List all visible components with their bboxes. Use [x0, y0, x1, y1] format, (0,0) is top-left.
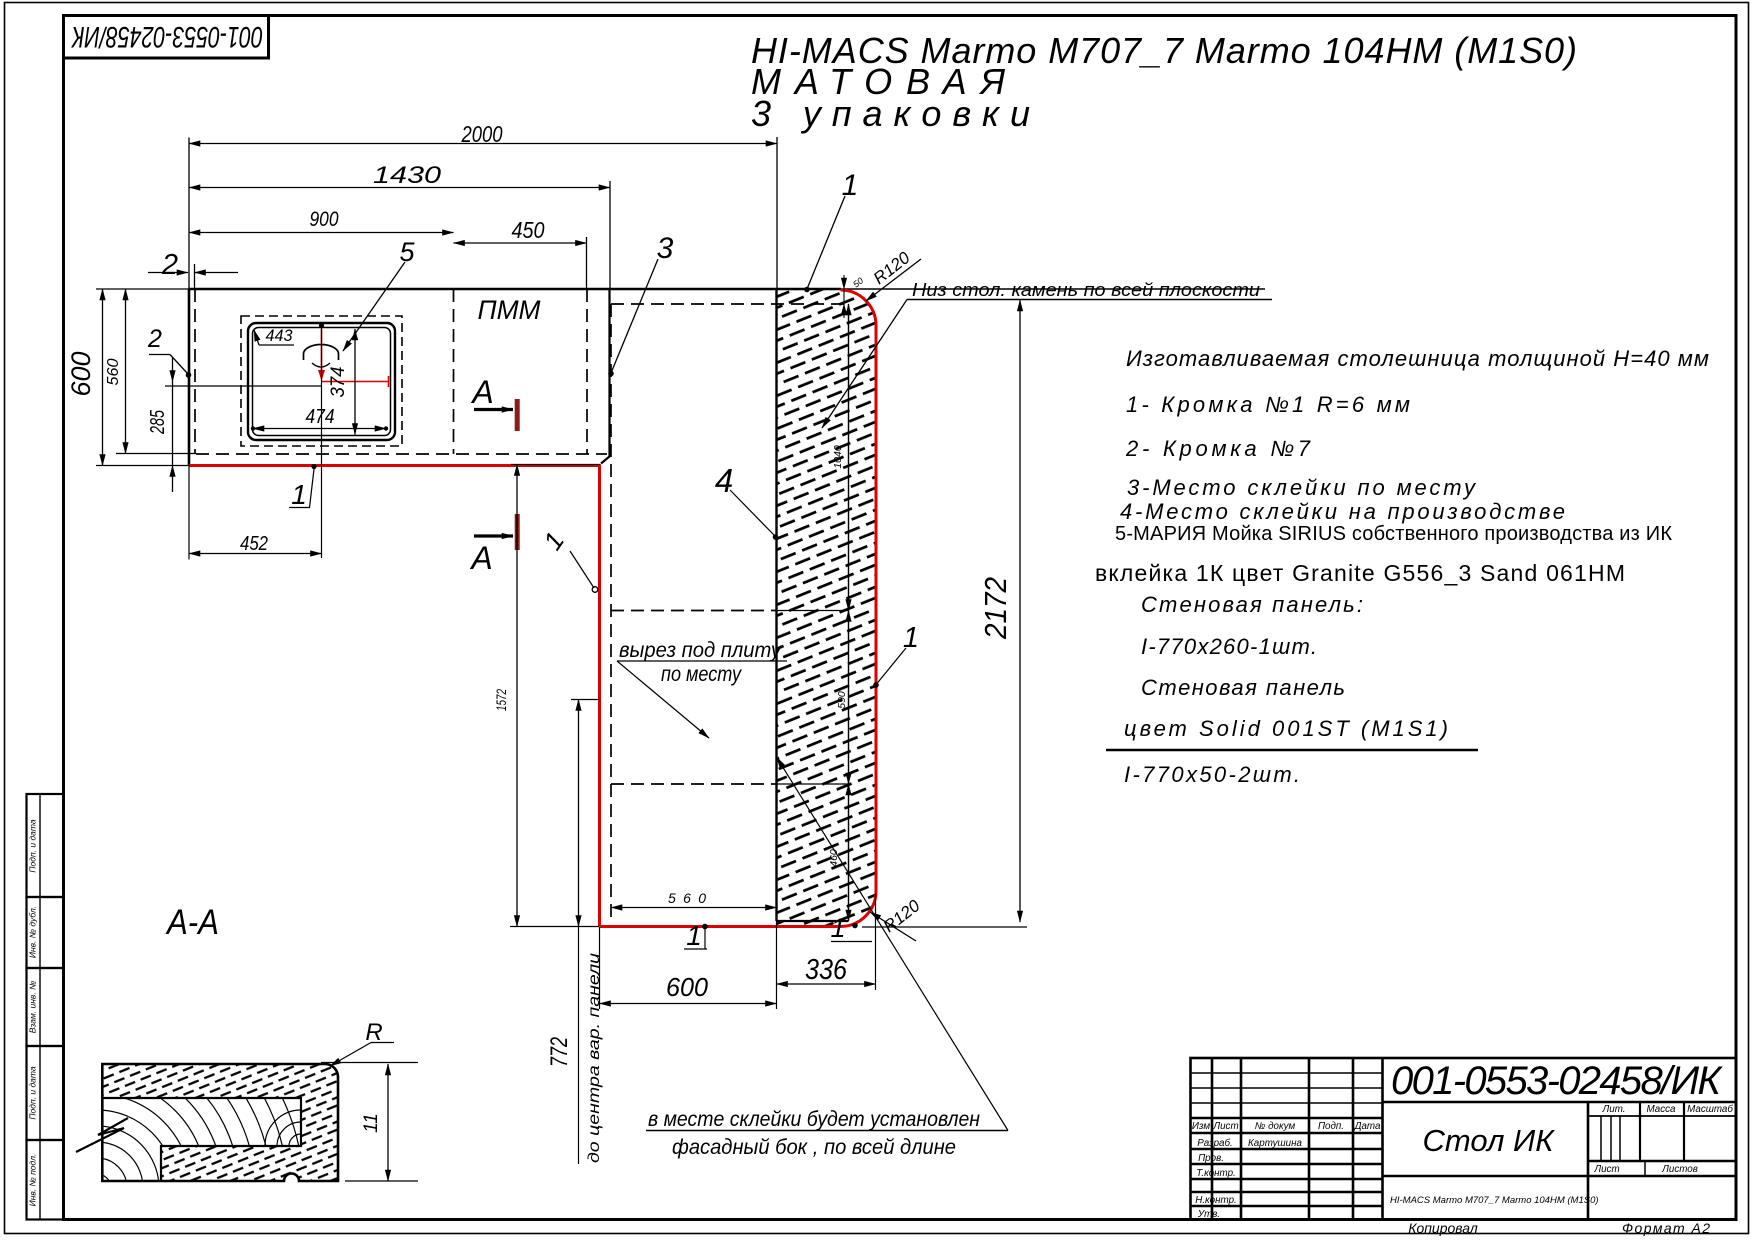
svg-text:Картушина: Картушина — [1248, 1138, 1302, 1149]
svg-text:2000: 2000 — [461, 121, 503, 147]
svg-text:5: 5 — [399, 237, 415, 267]
svg-text:Подп. и дата: Подп. и дата — [28, 1066, 38, 1119]
svg-text:Изм: Изм — [1192, 1121, 1210, 1132]
svg-text:Т.контр.: Т.контр. — [1196, 1168, 1236, 1179]
svg-text:11: 11 — [361, 1113, 382, 1133]
svg-text:3-Место склейки по месту: 3-Место склейки по месту — [1127, 475, 1477, 500]
svg-text:А: А — [470, 374, 493, 410]
svg-text:вклейка 1К цвет Granite G556_3: вклейка 1К цвет Granite G556_3 Sand 061H… — [1095, 560, 1625, 586]
svg-text:Стеновая панель:: Стеновая панель: — [1141, 592, 1363, 617]
svg-text:Формат А2: Формат А2 — [1622, 1220, 1710, 1236]
svg-text:Масса: Масса — [1647, 1104, 1677, 1115]
svg-text:5-МАРИЯ Мойка SIRIUS собственн: 5-МАРИЯ Мойка SIRIUS собственного произв… — [1115, 523, 1672, 545]
svg-text:по месту: по месту — [661, 663, 742, 686]
svg-text:1- Кромка №1 R=6 мм: 1- Кромка №1 R=6 мм — [1126, 392, 1410, 417]
svg-text:Масштаб: Масштаб — [1687, 1104, 1733, 1115]
svg-text:2: 2 — [147, 325, 162, 353]
svg-text:3: 3 — [657, 232, 674, 265]
svg-text:А: А — [469, 540, 492, 576]
svg-text:1: 1 — [291, 479, 307, 510]
svg-text:590: 590 — [836, 691, 848, 709]
svg-text:Подп. и дата: Подп. и дата — [28, 819, 38, 872]
svg-text:600: 600 — [66, 352, 96, 397]
svg-text:вырез под плиту: вырез под плиту — [619, 639, 782, 662]
svg-text:900: 900 — [310, 208, 339, 231]
svg-text:1040: 1040 — [832, 445, 844, 469]
svg-text:772: 772 — [546, 1037, 573, 1067]
svg-text:Стол ИК: Стол ИК — [1423, 1123, 1556, 1158]
svg-text:Копировал: Копировал — [1408, 1220, 1478, 1236]
svg-text:1: 1 — [686, 920, 702, 951]
svg-text:1572: 1572 — [493, 689, 509, 711]
svg-text:I-770x260-1шт.: I-770x260-1шт. — [1141, 634, 1317, 659]
svg-text:2- Кромка №7: 2- Кромка №7 — [1125, 436, 1311, 461]
svg-text:374: 374 — [328, 367, 349, 398]
svg-text:Лист: Лист — [1212, 1121, 1238, 1132]
svg-text:до центра вар. панели: до центра вар. панели — [586, 953, 603, 1163]
svg-text:2: 2 — [161, 249, 178, 281]
svg-text:452: 452 — [240, 533, 268, 555]
svg-text:Разраб.: Разраб. — [1197, 1138, 1232, 1149]
svg-text:001-0553-02458/ИК: 001-0553-02458/ИК — [70, 20, 263, 53]
svg-text:560: 560 — [105, 358, 122, 385]
svg-text:336: 336 — [805, 954, 848, 986]
svg-text:ПММ: ПММ — [478, 295, 541, 325]
svg-text:Дата: Дата — [1354, 1121, 1381, 1132]
svg-text:Взам. инв. №: Взам. инв. № — [28, 981, 38, 1034]
svg-text:Изготавливаемая столешница т: Изготавливаемая столешница толщиной Н=40… — [1126, 346, 1709, 371]
svg-text:Листов: Листов — [1661, 1164, 1698, 1175]
svg-text:А-А: А-А — [165, 903, 219, 942]
svg-text:450: 450 — [512, 217, 545, 243]
svg-text:Н.контр.: Н.контр. — [1195, 1195, 1236, 1206]
svg-text:1430: 1430 — [373, 162, 442, 189]
svg-text:4: 4 — [715, 462, 733, 499]
svg-text:443: 443 — [266, 326, 294, 345]
svg-text:№ докум: № докум — [1255, 1121, 1296, 1132]
svg-text:1: 1 — [830, 913, 845, 943]
svg-text:Подп.: Подп. — [1318, 1121, 1344, 1132]
svg-text:4-Место склейки на производ: 4-Место склейки на производстве — [1120, 499, 1565, 524]
svg-text:Утв.: Утв. — [1197, 1209, 1220, 1220]
svg-text:600: 600 — [666, 972, 709, 1002]
svg-text:285: 285 — [147, 409, 169, 434]
svg-text:Низ стол. камень по всей п: Низ стол. камень по всей плоскости — [912, 280, 1260, 300]
svg-text:Пров.: Пров. — [1198, 1153, 1224, 1164]
svg-text:в месте склейки будет уста: в месте склейки будет установлен — [648, 1108, 980, 1131]
svg-text:Инв. № дубл.: Инв. № дубл. — [28, 906, 38, 958]
svg-text:HI-MACS Marmo M707_7 Marmo 104: HI-MACS Marmo M707_7 Marmo 104HM (M1S0) — [1390, 1195, 1599, 1206]
svg-text:2172: 2172 — [978, 577, 1013, 640]
svg-text:460: 460 — [828, 849, 840, 867]
svg-text:Инв. № подл.: Инв. № подл. — [28, 1154, 38, 1207]
svg-text:001-0553-02458/ИК: 001-0553-02458/ИК — [1391, 1059, 1723, 1103]
svg-text:фасадный бок , по всей дл: фасадный бок , по всей длине — [672, 1136, 956, 1159]
svg-text:Лит.: Лит. — [1602, 1104, 1626, 1115]
svg-text:Стеновая панель: Стеновая панель — [1141, 675, 1345, 700]
svg-text:474: 474 — [306, 406, 335, 428]
svg-text:560: 560 — [668, 890, 706, 906]
svg-text:Лист: Лист — [1593, 1164, 1619, 1175]
